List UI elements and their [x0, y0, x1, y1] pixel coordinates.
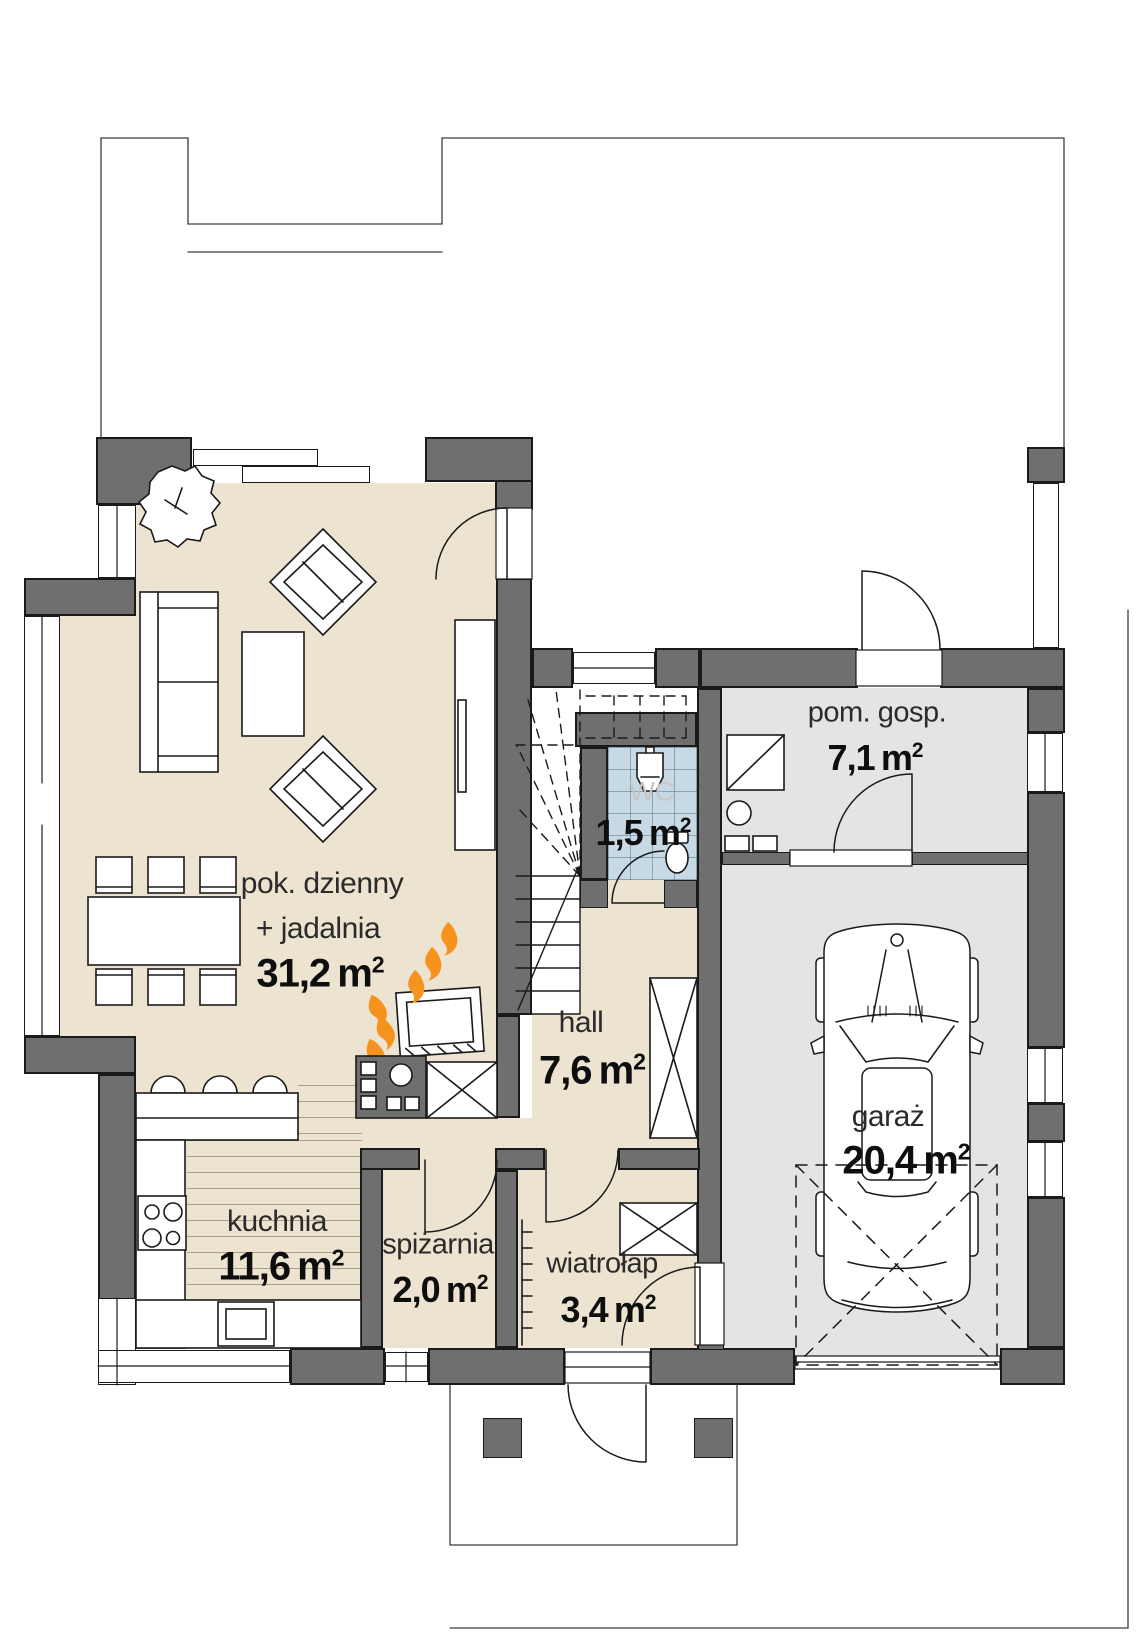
room-name-kitchen: kuchnia	[227, 1205, 327, 1239]
bar-stool	[151, 1076, 185, 1093]
bar-stool	[253, 1076, 287, 1093]
bar-counter	[136, 1093, 298, 1140]
mirror	[811, 1036, 824, 1054]
dining-set	[88, 857, 240, 1005]
coffee-table	[242, 632, 304, 736]
hood-ornament	[891, 934, 903, 946]
room-area-living: 31,2 m2	[256, 951, 383, 996]
room-name-living-2: + jadalnia	[256, 912, 380, 946]
room-name-garage: garaż	[852, 1100, 925, 1134]
kitchen-block	[356, 1056, 497, 1118]
room-name-living-1: pok. dzienny	[241, 867, 403, 901]
coat-hooks	[522, 1220, 532, 1345]
fireplace	[396, 987, 484, 1057]
room-name-vestibule: wiatrołap	[546, 1248, 658, 1281]
dining-table	[88, 897, 240, 965]
living-furniture	[139, 466, 495, 850]
room-name-hall: hall	[559, 1006, 604, 1040]
mirror	[970, 1036, 983, 1054]
room-name-utility: pom. gosp.	[808, 697, 946, 730]
bar-stool	[203, 1076, 237, 1093]
tv	[458, 700, 466, 792]
room-area-wc: 1,5 m2	[596, 812, 691, 854]
room-area-vestibule: 3,4 m2	[561, 1289, 656, 1331]
room-area-hall: 7,6 m2	[539, 1048, 645, 1093]
plant	[139, 466, 220, 547]
room-name-wc: WC	[630, 777, 675, 808]
room-area-utility: 7,1 m2	[828, 737, 923, 779]
utility-equipment	[725, 735, 784, 851]
floorplan-lineart	[0, 0, 1142, 1651]
floor-plan: pok. dzienny + jadalnia 31,2 m2 kuchnia …	[0, 0, 1142, 1651]
room-name-pantry: spiżarnia	[382, 1229, 494, 1262]
room-area-kitchen: 11,6 m2	[218, 1244, 343, 1289]
room-area-garage: 20,4 m2	[842, 1138, 969, 1183]
drain	[727, 801, 751, 825]
room-area-pantry: 2,0 m2	[393, 1269, 488, 1311]
